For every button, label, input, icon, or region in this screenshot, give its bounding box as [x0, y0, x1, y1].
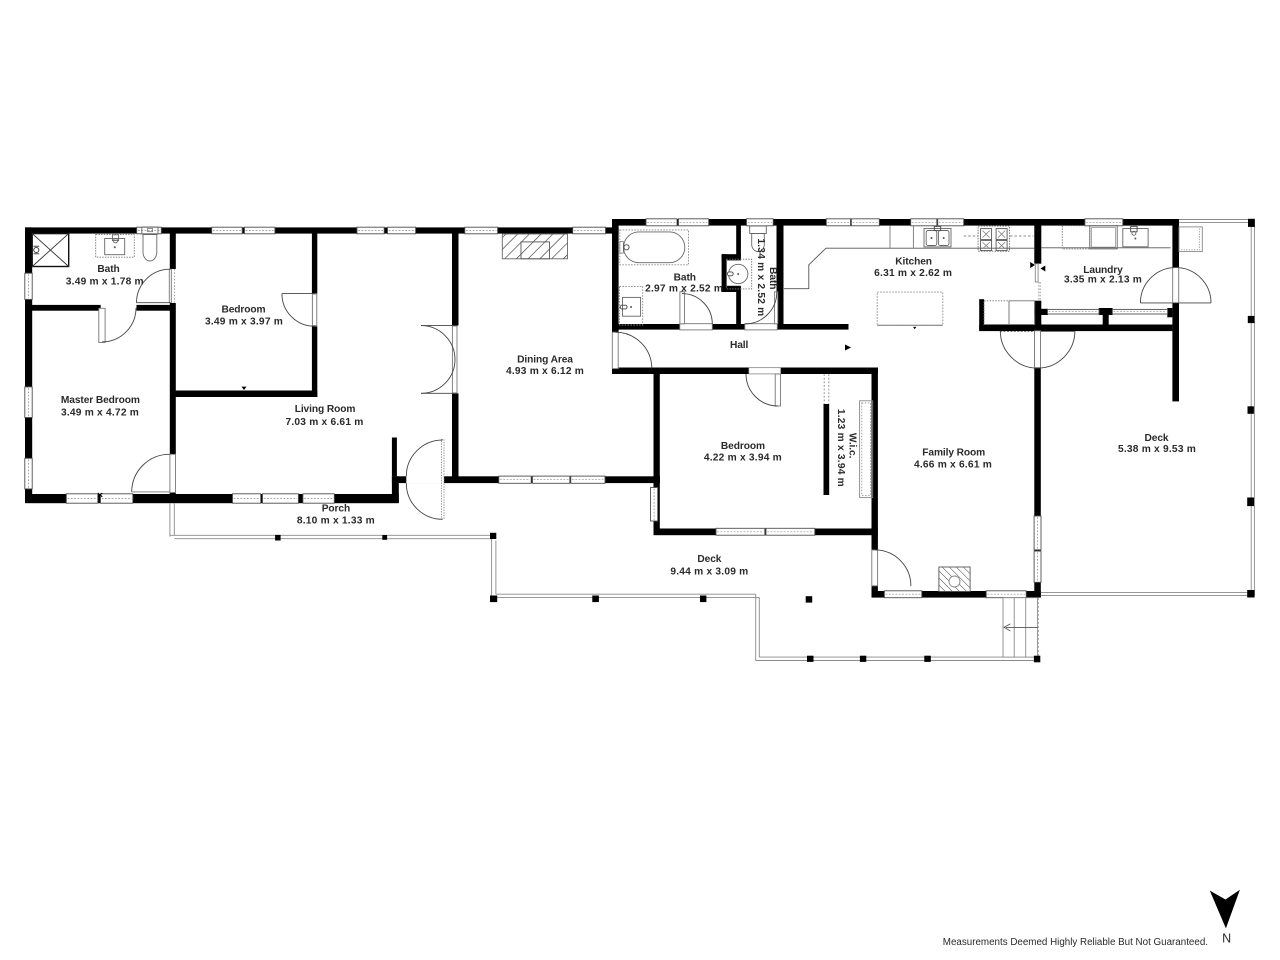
svg-text:Bath: Bath — [97, 264, 119, 275]
svg-text:Bath: Bath — [767, 267, 778, 289]
svg-text:7.03 m x 6.61 m: 7.03 m x 6.61 m — [285, 417, 363, 428]
svg-text:5.38 m x 9.53 m: 5.38 m x 9.53 m — [1118, 444, 1196, 455]
svg-text:Kitchen: Kitchen — [895, 256, 932, 267]
svg-text:N: N — [1222, 932, 1231, 946]
svg-text:9.44 m x 3.09 m: 9.44 m x 3.09 m — [670, 567, 748, 578]
svg-text:W.i.c.: W.i.c. — [847, 433, 858, 459]
svg-text:3.49 m x 4.72 m: 3.49 m x 4.72 m — [61, 407, 139, 418]
svg-text:3.49 m x 3.97 m: 3.49 m x 3.97 m — [205, 317, 283, 328]
svg-text:1.23 m x 3.94 m: 1.23 m x 3.94 m — [835, 409, 846, 487]
svg-text:Measurements Deemed Highly Rel: Measurements Deemed Highly Reliable But … — [943, 937, 1208, 948]
svg-text:2.97 m x 2.52 m: 2.97 m x 2.52 m — [645, 284, 723, 295]
svg-text:Master Bedroom: Master Bedroom — [61, 395, 140, 406]
svg-text:Deck: Deck — [697, 554, 721, 565]
svg-text:Bath: Bath — [674, 272, 696, 283]
svg-text:Deck: Deck — [1145, 433, 1169, 444]
svg-text:8.10 m x 1.33 m: 8.10 m x 1.33 m — [297, 515, 375, 526]
svg-text:3.49 m x 1.78 m: 3.49 m x 1.78 m — [66, 277, 144, 288]
svg-text:4.22 m x 3.94 m: 4.22 m x 3.94 m — [704, 452, 782, 463]
svg-text:Hall: Hall — [730, 340, 749, 351]
svg-text:3.35 m x 2.13 m: 3.35 m x 2.13 m — [1064, 274, 1142, 285]
svg-text:Living Room: Living Room — [295, 404, 356, 415]
svg-text:4.66 m x 6.61 m: 4.66 m x 6.61 m — [914, 459, 992, 470]
svg-text:Bedroom: Bedroom — [721, 441, 765, 452]
svg-text:Porch: Porch — [322, 504, 350, 515]
svg-text:Family Room: Family Room — [922, 448, 985, 459]
svg-text:6.31 m x 2.62 m: 6.31 m x 2.62 m — [874, 268, 952, 279]
svg-text:Bedroom: Bedroom — [221, 305, 265, 316]
svg-text:Dining Area: Dining Area — [517, 355, 573, 366]
svg-text:4.93 m x 6.12 m: 4.93 m x 6.12 m — [506, 366, 584, 377]
svg-text:1.34 m x 2.52 m: 1.34 m x 2.52 m — [755, 238, 766, 316]
